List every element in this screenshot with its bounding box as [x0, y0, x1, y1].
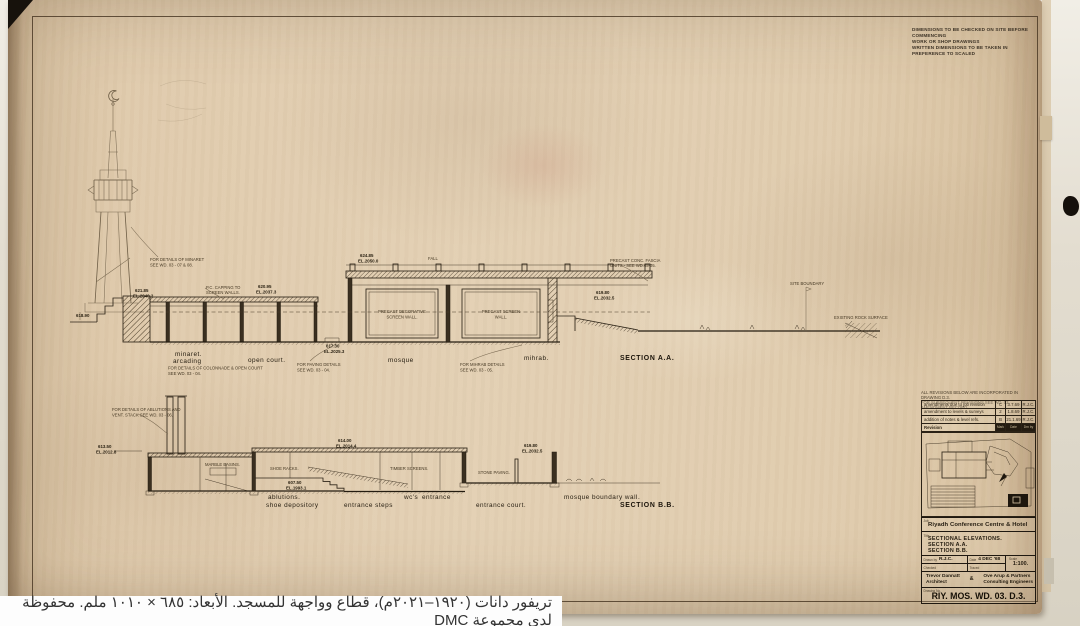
drawing-annotation: SCREEN WALL. [386, 315, 417, 320]
drawing-label: arcading [173, 358, 202, 365]
revision-note-line: ALL REVISIONS BELOW ARE INCORPORATED IN … [921, 390, 1036, 400]
revision-table-footer: Revision Mark Date Drn by [922, 424, 1035, 432]
drawing-annotation: EL.2037.3 [256, 290, 277, 295]
drawing-number: RIY. MOS. WD. 03. D.3. [932, 591, 1026, 601]
drawing-annotation: 621.85 [135, 288, 149, 293]
drawing-info-row: Drawn by R.J.C. Checked Date 4 DEC '68 T… [922, 556, 1035, 572]
revision-table: amendments due to job revision C 3.7.69 … [921, 400, 1036, 432]
drawing-annotation: 614.00 [338, 438, 352, 443]
drawing-annotation: TIMBER SCREENS. [390, 466, 428, 471]
title-block: Job Riyadh Conference Centre & Hotel Tit… [921, 517, 1036, 604]
drawing-label: wc's [403, 494, 418, 501]
title-label: Title [924, 533, 930, 539]
drawing-label: entrance steps [344, 502, 393, 509]
traced-label: Traced [970, 566, 980, 570]
scale-value: 1:100. [1013, 561, 1028, 567]
drawing-annotation: STONE PAVING. [478, 470, 510, 475]
sheet-title-row: Title SECTIONAL ELEVATIONS. SECTION A.A.… [922, 532, 1035, 556]
drawing-annotation: 618.90 [76, 313, 90, 318]
drawing-annotation: FOR MIHRAB DETAILS [460, 362, 505, 367]
caption-bar: تريفور دانات (١٩٢٠–٢٠٢١م)، قطاع وواجهة ل… [0, 596, 562, 626]
drawing-annotation: MARBLE BASINS. [205, 462, 240, 467]
drawing-annotation: FOR DETAILS OF COLONNADE & OPEN COURT [168, 366, 263, 371]
drawing-annotation: 620.95 [258, 284, 272, 289]
drawing-label: entrance court. [476, 502, 526, 509]
revision-row: amendments due to job revision C 3.7.69 … [922, 401, 1035, 409]
drawing-label: mosque [388, 357, 414, 364]
project-title: Riyadh Conference Centre & Hotel [928, 522, 1027, 528]
drawing-annotation: 619.80 [524, 443, 538, 448]
drawing-annotation: FOR DETAILS OF MINARET [150, 257, 205, 262]
drawing-annotation: EL.2032.5 [594, 296, 615, 301]
drawing-no-label: Drawing No. [924, 589, 942, 593]
revision-row: addition of notes & level refs. B 21.1.6… [922, 416, 1035, 424]
drawing-label: ablutions. [268, 494, 300, 501]
drawing-annotation: 619.80 [596, 290, 610, 295]
drawing-annotation: PRECAST SCREEN [482, 309, 520, 314]
drawing-annotation: 624.85 [360, 253, 374, 258]
drawing-annotation: SEE WD. 03 - 07 & 08. [150, 263, 193, 268]
drawing-annotation: EL.1993.1 [286, 486, 307, 491]
architect-name: Trevor Dannatt Architect [922, 574, 960, 585]
drawing-label: entrance [422, 494, 451, 501]
scale-cell: Scale 1:100. [1006, 556, 1035, 571]
screenshot-root: DIMENSIONS TO BE CHECKED ON SITE BEFORE … [0, 0, 1080, 626]
project-title-row: Job Riyadh Conference Centre & Hotel [922, 518, 1035, 532]
date-value: 4 DEC '68 [978, 557, 1000, 562]
drawing-annotation: FOR PAVING DETAILS [297, 362, 341, 367]
drawing-label: shoe depository [266, 502, 319, 509]
job-label: Job [924, 519, 929, 523]
revision-row: amendment to levels & surveys 2 1.8.69 R… [922, 409, 1035, 417]
drawing-annotation: EL.2040.2 [133, 294, 154, 299]
drawing-label: minaret. [175, 351, 202, 358]
drawing-annotation: FALL [428, 256, 438, 261]
drawing-annotation: UNITS - SEE WD.03-05. [610, 263, 656, 268]
date-traced-cell: Date 4 DEC '68 Traced [968, 556, 1006, 571]
section-title-label: SECTION A.A. [620, 355, 674, 362]
caption-text: تريفور دانات (١٩٢٠–٢٠٢١م)، قطاع وواجهة ل… [10, 593, 552, 626]
drawing-annotation: 607.50 [288, 480, 302, 485]
drawing-annotation: SEE WD. 03 - 04. [297, 368, 330, 373]
drawing-annotation: SITE BOUNDARY [790, 281, 824, 286]
checked-label: Checked [924, 566, 937, 570]
minaret-drawing [80, 90, 141, 320]
firms-row: Trevor Dannatt Architect & Ove Arup & Pa… [922, 572, 1035, 588]
drawing-annotation: 617.30 [326, 344, 340, 349]
key-plan-box [921, 432, 1036, 517]
drawing-annotation: EL.2032.5 [522, 449, 543, 454]
drawing-number-row: Drawing No. RIY. MOS. WD. 03. D.3. [922, 588, 1035, 603]
section-b-labels: ablutions.shoe depositoryentrance stepsw… [266, 494, 675, 509]
section-title-label: SECTION B.B. [620, 502, 675, 509]
drawing-annotation: EL.2014.4 [336, 444, 357, 449]
drawn-by-label: Drawn by [924, 558, 937, 562]
ampersand: & [960, 577, 984, 583]
architectural-drawing-svg: minaret.arcadingopen court.mosquemihrab.… [0, 0, 1080, 626]
drawn-by-value: R.J.C. [939, 557, 953, 562]
drawing-annotation: WALL. [495, 315, 507, 320]
drawing-annotation: EL.2025.3 [324, 349, 345, 354]
drawing-annotation: PRECAST DECORATIVE [378, 309, 426, 314]
section-a-drawing [70, 227, 880, 361]
drawn-checked-cell: Drawn by R.J.C. Checked [922, 556, 968, 571]
drawing-annotation: EXISTING ROCK SURFACE [834, 315, 888, 320]
drawing-label: mihrab. [524, 355, 549, 362]
date-label: Date [970, 558, 977, 562]
drawing-label: open court. [248, 357, 285, 364]
pencil-ghost-marks [158, 80, 206, 121]
drawing-annotation: SHOE RACKS. [270, 466, 299, 471]
engineer-name: Ove Arup & Partners Consulting Engineers [983, 574, 1035, 585]
drawing-annotation: SCREEN WALLS. [206, 290, 240, 295]
sheet-title-line: SECTION B.B. [928, 548, 1035, 554]
drawing-annotation: SEE WD. 03 - 05. [460, 368, 493, 373]
scale-label: Scale [1009, 557, 1017, 561]
drawing-annotation: SEE WD. 03 - 04. [168, 371, 201, 376]
section-a-labels: minaret.arcadingopen court.mosquemihrab.… [173, 351, 674, 365]
drawing-annotation: EL.2050.0 [358, 259, 379, 264]
drawing-annotation: 613.50 [98, 444, 112, 449]
section-b-drawing [114, 396, 660, 495]
drawing-annotation: FOR DETAILS OF ABLUTIONS AND [112, 407, 181, 412]
drawing-annotation: VENT. STACK SEE WD. 03 - 06. [112, 413, 173, 418]
drawing-annotation: EL.2012.8 [96, 450, 117, 455]
drawing-label: mosque boundary wall. [564, 494, 640, 501]
